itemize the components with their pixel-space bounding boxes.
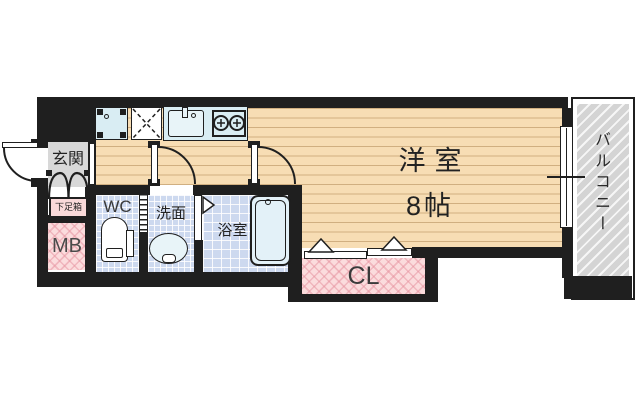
entrance-jamb-bottom: [31, 178, 48, 187]
entrance-door-leaf: [2, 142, 38, 148]
balcony-label: バルコニー: [588, 131, 612, 281]
bathroom-door-leaf: [194, 195, 202, 241]
entrance-closet-jamb: [84, 170, 90, 176]
fridge-space-icon: [95, 107, 128, 140]
bathtub-faucet-icon: [265, 199, 271, 205]
shoe-cabinet-label: 下足箱: [55, 203, 82, 212]
toilet-tank-icon: [126, 230, 134, 257]
entrance-door-arc: [4, 148, 37, 181]
western-room-floor: [302, 108, 563, 248]
wall-closet-bottom: [288, 294, 438, 302]
bathroom-label: 浴室: [205, 221, 260, 239]
wall-wc-washroom: [139, 233, 148, 272]
floor-plan: 下足箱: [0, 0, 640, 400]
washer-space-icon: [131, 107, 162, 140]
washroom-doorway-gap: [150, 185, 193, 195]
wall-room-balcony-lower: [562, 228, 573, 278]
basin-drain-icon: [162, 254, 176, 263]
faucet-knob-icon: [191, 113, 196, 118]
western-room-size-label: 8帖: [335, 190, 525, 222]
entrance-label: 玄関: [48, 150, 88, 170]
wall-room-bottom: [412, 247, 573, 258]
closet-label: CL: [302, 258, 425, 295]
closet-sliding-door-right: [367, 248, 412, 256]
hall-door-leaf: [151, 144, 158, 184]
meter-box-label: MB: [48, 222, 86, 270]
wall-washroom-bath: [194, 240, 203, 272]
stove-icon: [212, 110, 246, 137]
toilet-seat-icon: [106, 248, 123, 258]
wc-label: WC: [96, 196, 139, 216]
entrance-step: [90, 144, 94, 184]
western-room-label: 洋室: [335, 145, 525, 177]
wall-room-balcony-upper: [562, 108, 573, 126]
wall-bottom-left: [37, 272, 302, 287]
shoe-cabinet-box: 下足箱: [49, 197, 88, 218]
washroom-label: 洗面: [148, 204, 194, 222]
balcony-window: [560, 126, 573, 228]
entrance-closet-jamb: [46, 170, 52, 176]
room-door-leaf: [251, 144, 258, 184]
faucet-icon: [182, 107, 188, 118]
wc-folding-door: [139, 193, 148, 233]
wall-hall-wet: [88, 185, 302, 195]
